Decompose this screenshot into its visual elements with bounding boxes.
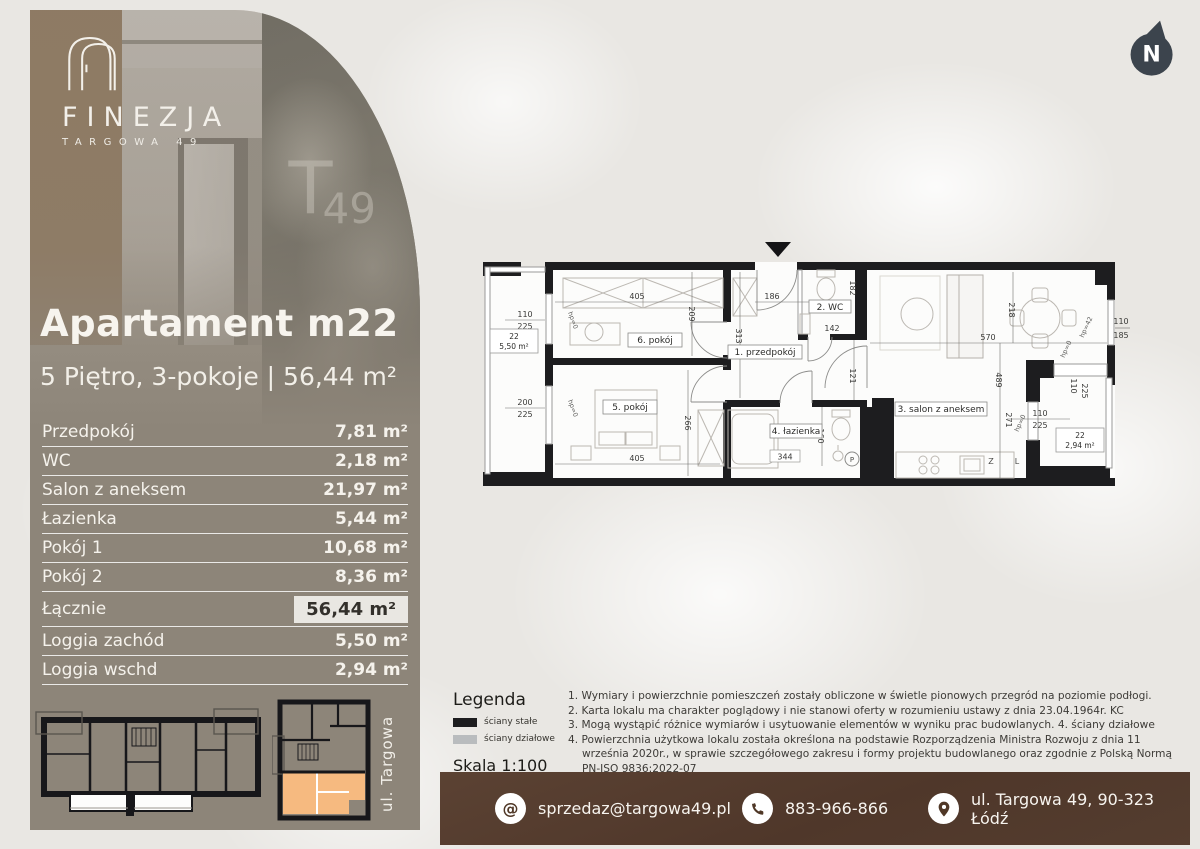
svg-text:200: 200 (517, 398, 532, 407)
legend-item-partition: ściany działowe (453, 734, 563, 744)
table-row: WC2,18 m² (42, 447, 408, 476)
contact-bar: @ sprzedaz@targowa49.pl 883-966-866 ul. … (440, 772, 1190, 845)
svg-text:22: 22 (1075, 431, 1085, 440)
svg-text:489: 489 (994, 372, 1003, 387)
apartment-title: Apartament m22 (40, 302, 415, 345)
apartment-subtitle: 5 Piętro, 3-pokoje | 56,44 m² (40, 362, 420, 391)
room-label: 5. pokój (612, 402, 648, 413)
svg-text:344: 344 (777, 453, 792, 462)
svg-text:2,94 m²: 2,94 m² (1065, 441, 1094, 450)
table-row: Loggia zachód5,50 m² (42, 627, 408, 656)
building-plan-highlight (272, 696, 376, 824)
table-row: Salon z aneksem21,97 m² (42, 476, 408, 505)
partition-wall-swatch (453, 735, 477, 744)
solid-wall-swatch (453, 718, 477, 727)
svg-text:182: 182 (848, 280, 857, 295)
note-item: 2. Karta lokalu ma charakter poglądowy i… (568, 704, 1180, 719)
entrance-arrow-icon (765, 242, 791, 257)
table-row: Przedpokój7,81 m² (42, 418, 408, 447)
table-row: Loggia wschd2,94 m² (42, 656, 408, 685)
total-area-badge: 56,44 m² (294, 596, 408, 623)
note-item: 3. Mogą wystąpić różnice wymiarów i usyt… (568, 718, 1180, 733)
svg-text:271: 271 (1004, 412, 1013, 427)
phone-icon (742, 793, 773, 824)
compass-n: N (1131, 34, 1173, 76)
legend-item-solid: ściany stałe (453, 717, 563, 727)
svg-text:142: 142 (824, 324, 839, 333)
street-label: ul. Targowa (378, 708, 396, 820)
svg-text:22: 22 (509, 332, 519, 341)
svg-text:209: 209 (687, 306, 696, 321)
washer-letter: P (850, 456, 854, 464)
room-label: 1. przedpokój (735, 347, 796, 358)
building-plan-overview (34, 704, 268, 822)
room-label: 6. pokój (637, 335, 673, 346)
svg-text:186: 186 (764, 292, 779, 301)
svg-text:405: 405 (629, 292, 644, 301)
svg-text:570: 570 (980, 333, 995, 342)
legend-title: Legenda (453, 690, 563, 710)
svg-text:185: 185 (1113, 331, 1128, 340)
location-pin-icon (928, 793, 959, 824)
brand-tagline: TARGOWA 49 (62, 137, 230, 148)
svg-text:5,50 m²: 5,50 m² (499, 342, 528, 351)
legal-notes: 1. Wymiary i powierzchnie pomieszczeń zo… (568, 689, 1180, 776)
svg-text:218: 218 (1007, 302, 1016, 317)
svg-text:225: 225 (1080, 383, 1089, 398)
brand-logo: FINEZJA TARGOWA 49 (62, 32, 230, 148)
svg-text:225: 225 (517, 410, 532, 419)
brand-name: FINEZJA (62, 102, 230, 133)
note-item: 4. Powierzchnia użytkowa lokalu została … (568, 733, 1180, 777)
room-label: 4. łazienka (772, 427, 821, 437)
svg-text:110: 110 (1113, 317, 1128, 326)
table-row: Łazienka5,44 m² (42, 505, 408, 534)
fridge-letter: L (1015, 457, 1020, 466)
svg-text:110: 110 (1032, 409, 1047, 418)
contact-email[interactable]: @ sprzedaz@targowa49.pl (495, 772, 731, 845)
svg-text:266: 266 (683, 415, 692, 430)
svg-text:225: 225 (1032, 421, 1047, 430)
room-label: 2. WC (817, 303, 844, 313)
loggia-west-interior (485, 267, 545, 479)
arch-door-icon (62, 32, 128, 92)
note-item: 1. Wymiary i powierzchnie pomieszczeń zo… (568, 689, 1180, 704)
legend: Legenda ściany stałe ściany działowe Ska… (453, 690, 563, 775)
building-key-plans: ul. Targowa (30, 690, 420, 822)
area-table: Przedpokój7,81 m² WC2,18 m² Salon z anek… (42, 418, 408, 685)
contact-phone[interactable]: 883-966-866 (742, 772, 888, 845)
left-panel: T 49 FINEZJA TARGOWA 49 Apartament m22 5… (30, 10, 420, 830)
sink-letter: Z (988, 457, 994, 466)
svg-text:405: 405 (629, 454, 644, 463)
room-label: 3. salon z aneksem (898, 405, 985, 415)
table-row: Pokój 110,68 m² (42, 534, 408, 563)
svg-text:121: 121 (848, 368, 857, 383)
contact-address[interactable]: ul. Targowa 49, 90-323 Łódź (928, 772, 1190, 845)
floor-plan: 405 209 186 313 110 225 200 225 266 405 … (470, 228, 1130, 493)
svg-text:110: 110 (517, 310, 532, 319)
table-row: Pokój 28,36 m² (42, 563, 408, 592)
table-row-total: Łącznie56,44 m² (42, 592, 408, 627)
svg-text:110: 110 (1069, 378, 1078, 393)
svg-text:313: 313 (734, 328, 743, 343)
email-icon: @ (495, 793, 526, 824)
